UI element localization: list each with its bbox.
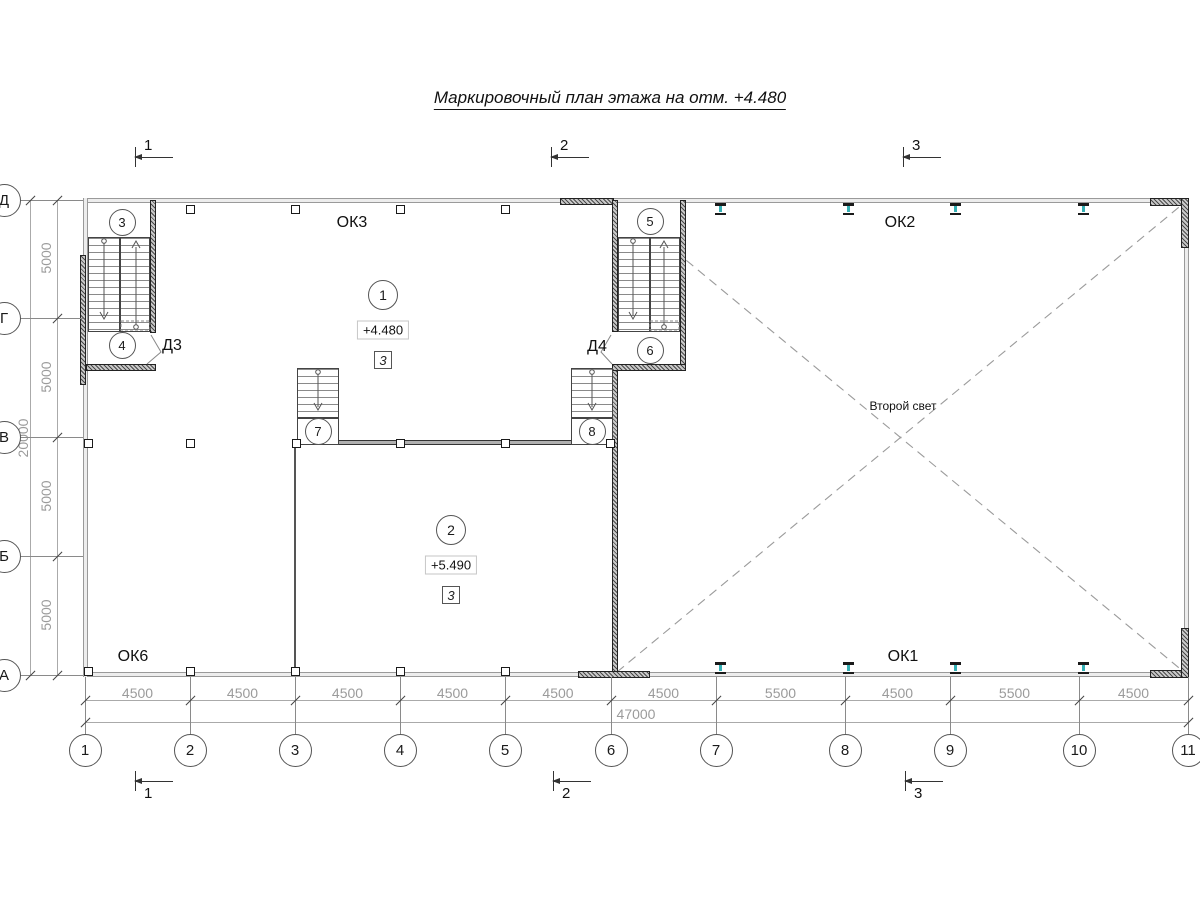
column-square [291, 667, 300, 676]
column-square [84, 439, 93, 448]
dimension-label: 4500 [108, 685, 168, 701]
beam-web [1082, 665, 1085, 671]
dimension-label: 4500 [634, 685, 694, 701]
beam-web [847, 206, 850, 212]
stair-mark-circle: 6 [637, 337, 664, 364]
window-mark-label: ОК1 [888, 648, 919, 666]
room-elevation-label: +4.480 [357, 321, 409, 340]
void-label: Второй свет [869, 399, 936, 413]
beam-web [847, 665, 850, 671]
grid-line-vertical [845, 677, 846, 734]
door-mark-label: Д3 [162, 337, 182, 355]
dimension-label: 5000 [38, 466, 54, 526]
arrow-up-icon [660, 241, 668, 248]
beam-flange [843, 672, 854, 675]
section-arrow-icon [902, 154, 910, 160]
column-square [606, 439, 615, 448]
grid-axis-circle: 6 [595, 734, 628, 767]
beam-web [719, 206, 722, 212]
column-square [501, 667, 510, 676]
stair-run-start-dot [134, 325, 139, 330]
dimension-label: 4500 [213, 685, 273, 701]
stair-mark-circle: 7 [305, 418, 332, 445]
dimension-label: 4500 [318, 685, 378, 701]
stair-mark-circle: 3 [109, 209, 136, 236]
grid-line-vertical [295, 677, 296, 734]
beam-flange [950, 672, 961, 675]
grid-axis-circle: 1 [69, 734, 102, 767]
door-mark-label: Д4 [587, 338, 607, 356]
beam-web [1082, 206, 1085, 212]
grid-axis-circle: 5 [489, 734, 522, 767]
column-square [292, 439, 301, 448]
section-marker: 2 [551, 157, 591, 158]
dimension-label: 4500 [423, 685, 483, 701]
floor-plan-canvas: Маркировочный план этажа на отм. +4.480 … [0, 0, 1200, 900]
grid-axis-circle: 3 [279, 734, 312, 767]
column-square [396, 667, 405, 676]
stair-mark-circle: 8 [579, 418, 606, 445]
grid-axis-circle: 2 [174, 734, 207, 767]
drawing-title: Маркировочный план этажа на отм. +4.480 [434, 88, 786, 108]
grid-line-horizontal [20, 318, 83, 319]
section-marker-label: 2 [560, 137, 568, 154]
section-marker: 3 [903, 157, 943, 158]
stair-run-start-dot [316, 370, 321, 375]
arrow-up-icon [132, 241, 140, 248]
window-mark-label: ОК3 [337, 214, 368, 232]
grid-line-vertical [505, 677, 506, 734]
beam-web [719, 665, 722, 671]
grid-line-vertical [1188, 677, 1189, 734]
steel-column-icon [1077, 203, 1089, 215]
steel-column-icon [714, 662, 726, 674]
section-arrow-icon [134, 778, 142, 784]
stair-mark-circle: 5 [637, 208, 664, 235]
beam-web [954, 206, 957, 212]
beam-flange [1078, 672, 1089, 675]
column-square [396, 205, 405, 214]
window-mark-label: ОК2 [885, 214, 916, 232]
steel-column-icon [714, 203, 726, 215]
grid-line-horizontal [20, 437, 83, 438]
grid-axis-circle: 11 [1172, 734, 1200, 767]
stair-run-start-dot [631, 239, 636, 244]
grid-line-vertical [716, 677, 717, 734]
grid-axis-circle: 8 [829, 734, 862, 767]
stair-run-start-dot [590, 370, 595, 375]
section-marker: 2 [553, 781, 593, 782]
grid-axis-circle: 4 [384, 734, 417, 767]
stair-mark-circle: 4 [109, 332, 136, 359]
window-mark-label: ОК6 [118, 648, 149, 666]
section-marker-label: 1 [144, 785, 152, 802]
section-marker-label: 3 [914, 785, 922, 802]
grid-line-horizontal [20, 556, 83, 557]
column-square [501, 205, 510, 214]
dimension-label: 5000 [38, 228, 54, 288]
column-square [396, 439, 405, 448]
section-marker-label: 2 [562, 785, 570, 802]
dimension-label: 5500 [985, 685, 1045, 701]
grid-line-vertical [190, 677, 191, 734]
section-arrow-icon [134, 154, 142, 160]
beam-flange [950, 213, 961, 216]
grid-line-vertical [611, 677, 612, 734]
beam-flange [843, 213, 854, 216]
room-elevation-label: +5.490 [425, 556, 477, 575]
grid-line-vertical [85, 677, 86, 734]
stair-run-start-dot [102, 239, 107, 244]
dim-line-bottom-2 [85, 722, 1188, 723]
section-marker: 1 [135, 157, 175, 158]
dimension-label: 5000 [38, 585, 54, 645]
steel-column-icon [1077, 662, 1089, 674]
dimension-total-bottom: 47000 [606, 706, 666, 722]
column-square [186, 439, 195, 448]
section-marker-label: 3 [912, 137, 920, 154]
column-square [186, 205, 195, 214]
dimension-label: 5000 [38, 347, 54, 407]
drawing-title-text: Маркировочный план этажа на отм. +4.480 [434, 88, 786, 110]
beam-flange [715, 672, 726, 675]
beam-flange [1078, 213, 1089, 216]
grid-axis-circle: 9 [934, 734, 967, 767]
section-marker: 3 [905, 781, 945, 782]
steel-column-icon [949, 662, 961, 674]
room-type-mark: 3 [442, 586, 460, 604]
room-number-circle: 2 [436, 515, 466, 545]
section-arrow-icon [904, 778, 912, 784]
dimension-label: 4500 [1104, 685, 1164, 701]
annotation-lines-layer [0, 0, 1200, 900]
room-type-mark: 3 [374, 351, 392, 369]
column-square [186, 667, 195, 676]
grid-axis-circle: 7 [700, 734, 733, 767]
steel-column-icon [949, 203, 961, 215]
grid-axis-circle: 10 [1063, 734, 1096, 767]
section-marker-label: 1 [144, 137, 152, 154]
grid-line-vertical [400, 677, 401, 734]
dimension-label: 5500 [751, 685, 811, 701]
dimension-label: 4500 [528, 685, 588, 701]
grid-line-vertical [1079, 677, 1080, 734]
section-marker: 1 [135, 781, 175, 782]
door-swing-d3 [147, 335, 161, 364]
column-square [291, 205, 300, 214]
column-square [501, 439, 510, 448]
stair-run-start-dot [662, 325, 667, 330]
dimension-label: 4500 [868, 685, 928, 701]
beam-flange [715, 213, 726, 216]
section-arrow-icon [552, 778, 560, 784]
steel-column-icon [842, 662, 854, 674]
grid-line-vertical [950, 677, 951, 734]
room-number-circle: 1 [368, 280, 398, 310]
section-arrow-icon [550, 154, 558, 160]
steel-column-icon [842, 203, 854, 215]
beam-web [954, 665, 957, 671]
column-square [84, 667, 93, 676]
